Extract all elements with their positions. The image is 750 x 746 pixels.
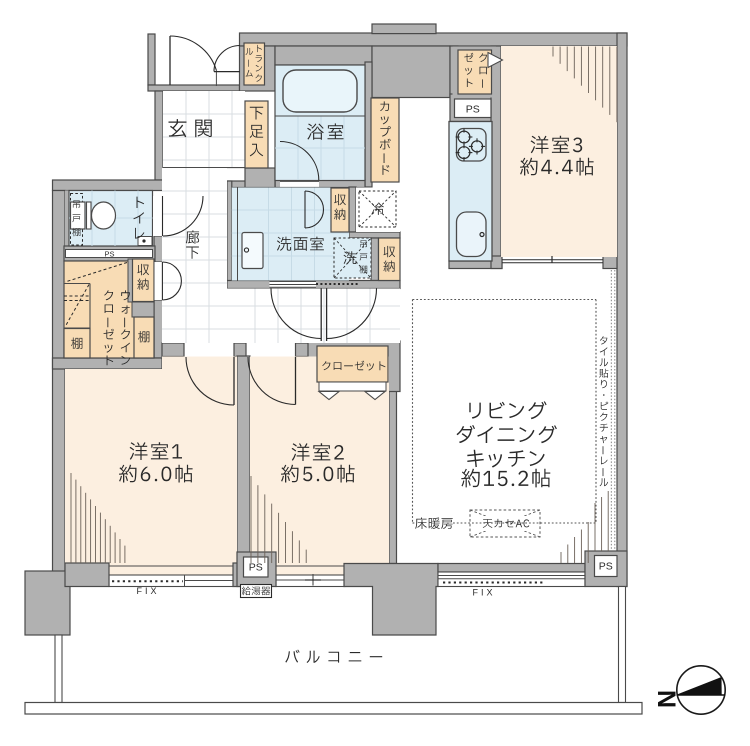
svg-text:N: N [654,690,682,708]
svg-text:FIX: FIX [472,588,495,598]
svg-text:PS: PS [249,562,263,574]
svg-text:PS: PS [599,561,613,573]
svg-text:PS: PS [466,104,480,116]
svg-text:FIX: FIX [136,586,159,596]
svg-text:PS: PS [104,249,114,258]
